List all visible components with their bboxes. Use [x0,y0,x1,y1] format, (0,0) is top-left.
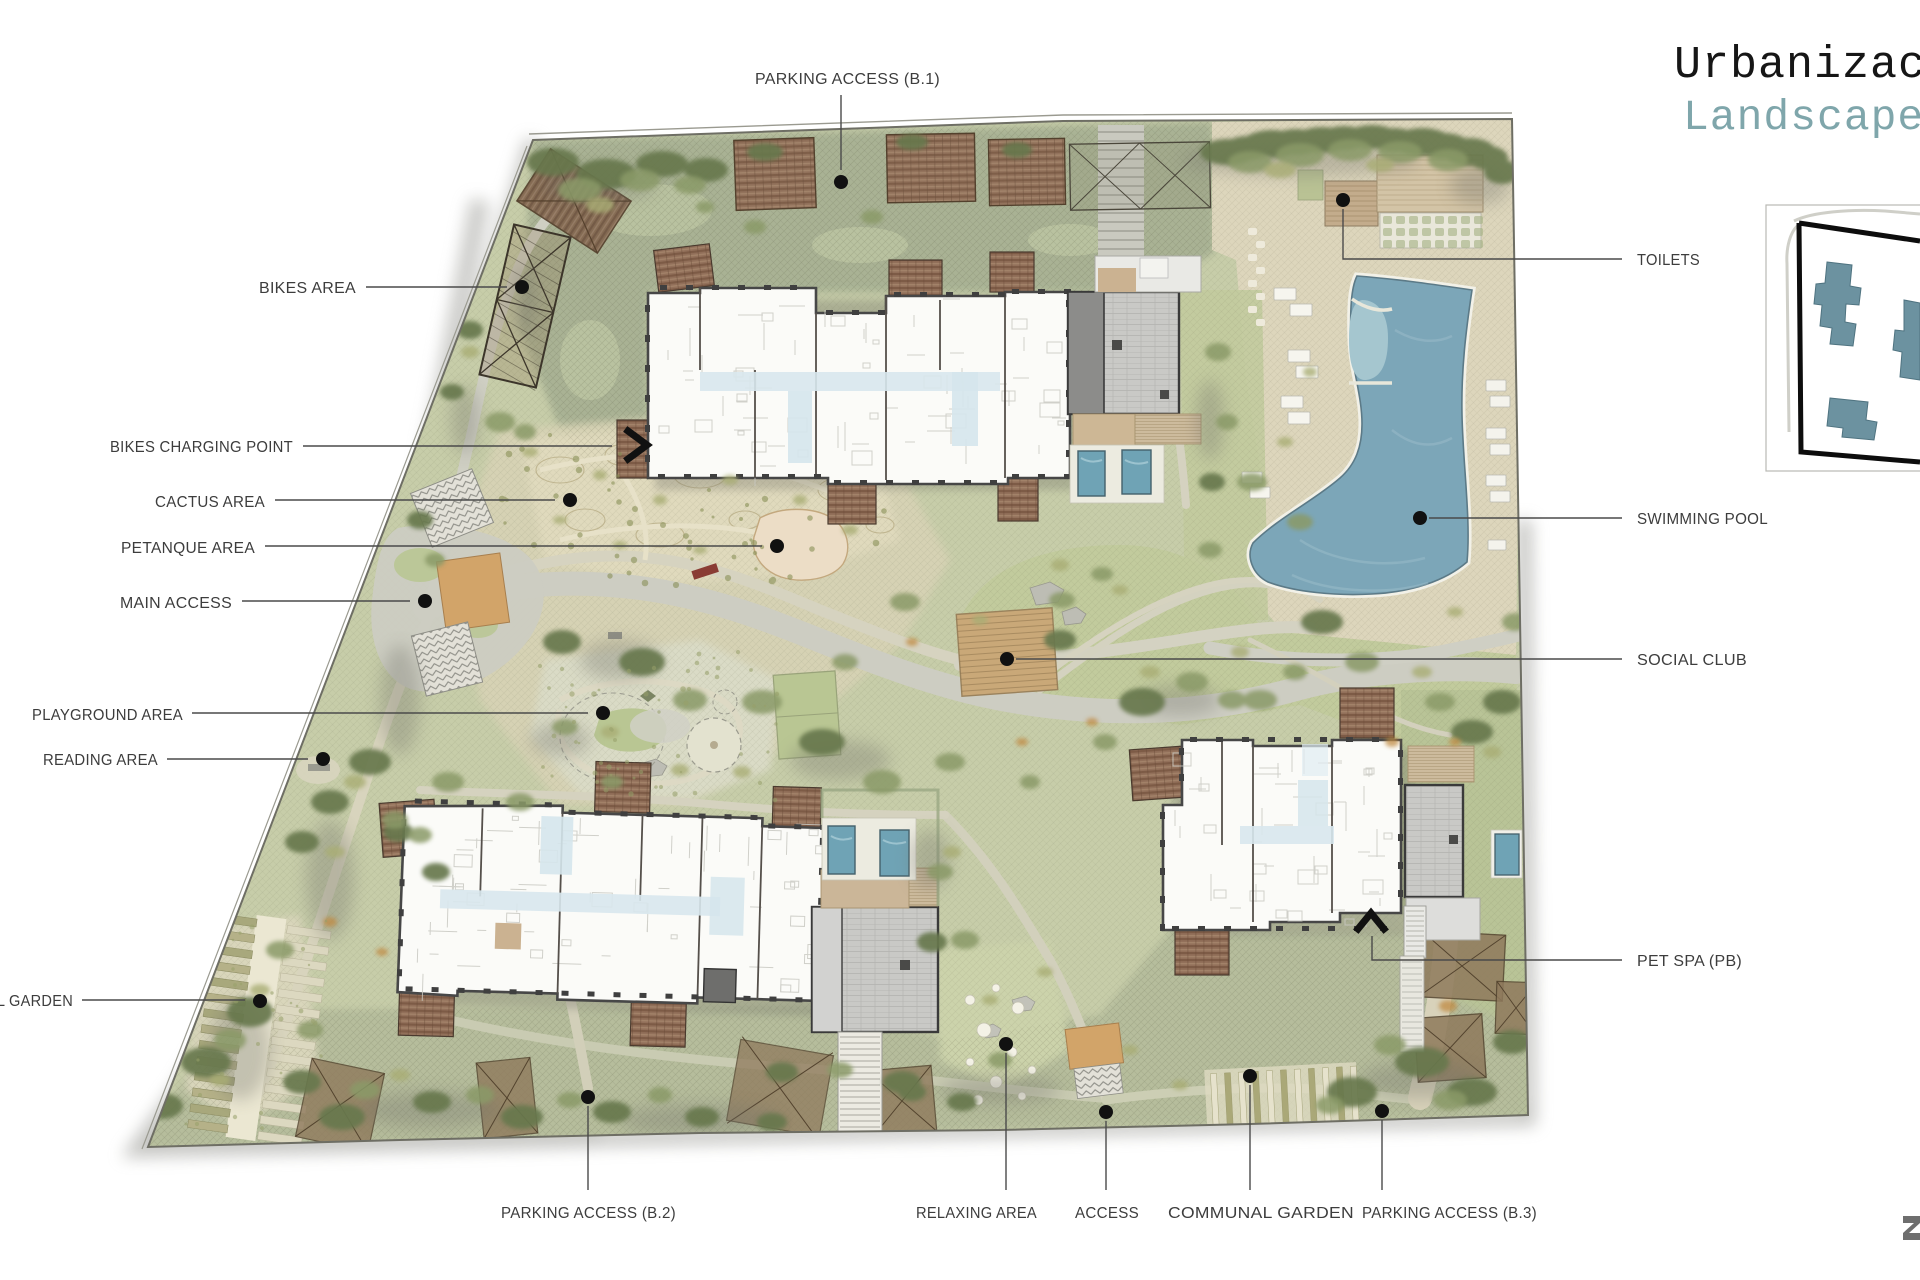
svg-text:MAIN ACCESS: MAIN ACCESS [120,595,232,612]
svg-text:PARKING ACCESS (B.1): PARKING ACCESS (B.1) [755,71,940,88]
svg-text:BIKES CHARGING POINT: BIKES CHARGING POINT [110,439,293,456]
svg-text:PET SPA (PB): PET SPA (PB) [1637,953,1742,970]
svg-text:ACCESS: ACCESS [1075,1205,1139,1222]
svg-text:PETANQUE AREA: PETANQUE AREA [121,540,255,557]
svg-text:Urbanización: Urbanización [1674,40,1920,91]
svg-text:SWIMMING POOL: SWIMMING POOL [1637,511,1768,528]
svg-text:PARKING ACCESS (B.3): PARKING ACCESS (B.3) [1362,1205,1537,1222]
svg-text:CACTUS AREA: CACTUS AREA [155,494,265,511]
svg-text:TOILETS: TOILETS [1637,252,1700,269]
svg-text:RELAXING AREA: RELAXING AREA [916,1205,1037,1222]
svg-text:PLAYGROUND AREA: PLAYGROUND AREA [32,707,183,724]
svg-text:COMMUNAL GARDEN: COMMUNAL GARDEN [0,993,73,1010]
svg-text:SOCIAL CLUB: SOCIAL CLUB [1637,652,1747,669]
svg-text:READING AREA: READING AREA [43,752,158,769]
svg-text:COMMUNAL GARDEN: COMMUNAL GARDEN [1168,1205,1354,1222]
svg-text:PARKING ACCESS (B.2): PARKING ACCESS (B.2) [501,1205,676,1222]
svg-text:BIKES AREA: BIKES AREA [259,280,356,297]
svg-text:Landscape Pl: Landscape Pl [1683,93,1920,142]
